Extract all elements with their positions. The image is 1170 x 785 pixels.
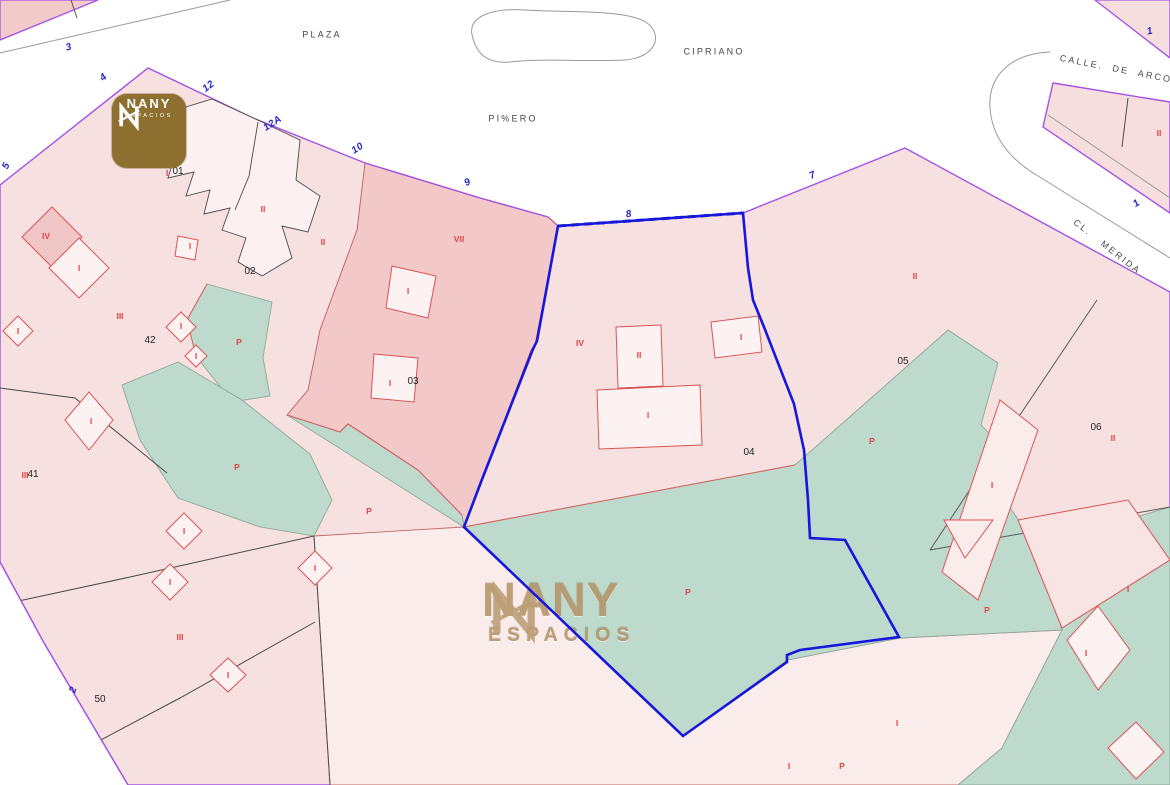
building-mark: I	[991, 481, 993, 490]
street-label: CIPRIANO	[683, 48, 744, 57]
building-mark: I	[17, 327, 19, 336]
building-mark: I	[1085, 649, 1087, 658]
building	[711, 316, 762, 358]
parcel-number: 06	[1090, 423, 1101, 433]
building-mark: I	[90, 417, 92, 426]
building	[175, 236, 198, 260]
building-mark: P	[869, 437, 875, 446]
nany-monogram-icon	[112, 101, 146, 131]
building	[597, 385, 702, 449]
building-mark: I	[189, 242, 191, 251]
parcel-number: 05	[897, 357, 908, 367]
building-mark: I	[740, 333, 742, 342]
building-mark: I	[1127, 585, 1129, 594]
block-ne[interactable]	[1043, 83, 1170, 213]
brand-badge: NANY ESPACIOS	[112, 94, 186, 168]
street-label: PI%ERO	[488, 115, 537, 124]
building-mark: III	[116, 312, 123, 321]
parcel-number: 01	[172, 167, 183, 177]
cadastral-map: NANY ESPACIOS PLAZACIPRIANOPI%EROCALLE. …	[0, 0, 1170, 785]
building-mark: VII	[454, 235, 464, 244]
building-mark: I	[195, 352, 197, 361]
building-mark: P	[685, 588, 691, 597]
building-mark: P	[236, 338, 242, 347]
parcel-number: 41	[27, 470, 38, 480]
building-mark: I	[183, 527, 185, 536]
parcel-number: 02	[244, 267, 255, 277]
building-mark: P	[234, 463, 240, 472]
parcel-number: 50	[94, 695, 105, 705]
parcel-corner-ne[interactable]	[1095, 0, 1170, 58]
parcel-number: 03	[407, 377, 418, 387]
building-mark: I	[227, 671, 229, 680]
building-mark: II	[1111, 434, 1116, 443]
building-mark: I	[788, 762, 790, 771]
building-mark: I	[166, 169, 168, 178]
building-mark: P	[839, 762, 845, 771]
building-mark: II	[261, 205, 266, 214]
parcel-number: 04	[743, 448, 754, 458]
building-mark: I	[78, 264, 80, 273]
building-mark: I	[169, 578, 171, 587]
building-mark: I	[407, 287, 409, 296]
building	[386, 266, 436, 318]
building-mark: P	[366, 507, 372, 516]
building-mark: I	[180, 322, 182, 331]
building-mark: P	[984, 606, 990, 615]
building-mark: III	[176, 633, 183, 642]
building-mark: IV	[42, 232, 50, 241]
parcel-number: 42	[144, 336, 155, 346]
street-label: PLAZA	[302, 31, 342, 40]
plaza-island	[472, 10, 656, 63]
building-mark: I	[389, 379, 391, 388]
building-mark: I	[896, 719, 898, 728]
building-mark: II	[1157, 129, 1162, 138]
building-mark: I	[647, 411, 649, 420]
building-mark: I	[314, 564, 316, 573]
building-mark: II	[321, 238, 326, 247]
building-mark: II	[913, 272, 918, 281]
building-mark: IV	[576, 339, 584, 348]
building-mark: II	[637, 351, 642, 360]
building-mark: III	[21, 471, 28, 480]
